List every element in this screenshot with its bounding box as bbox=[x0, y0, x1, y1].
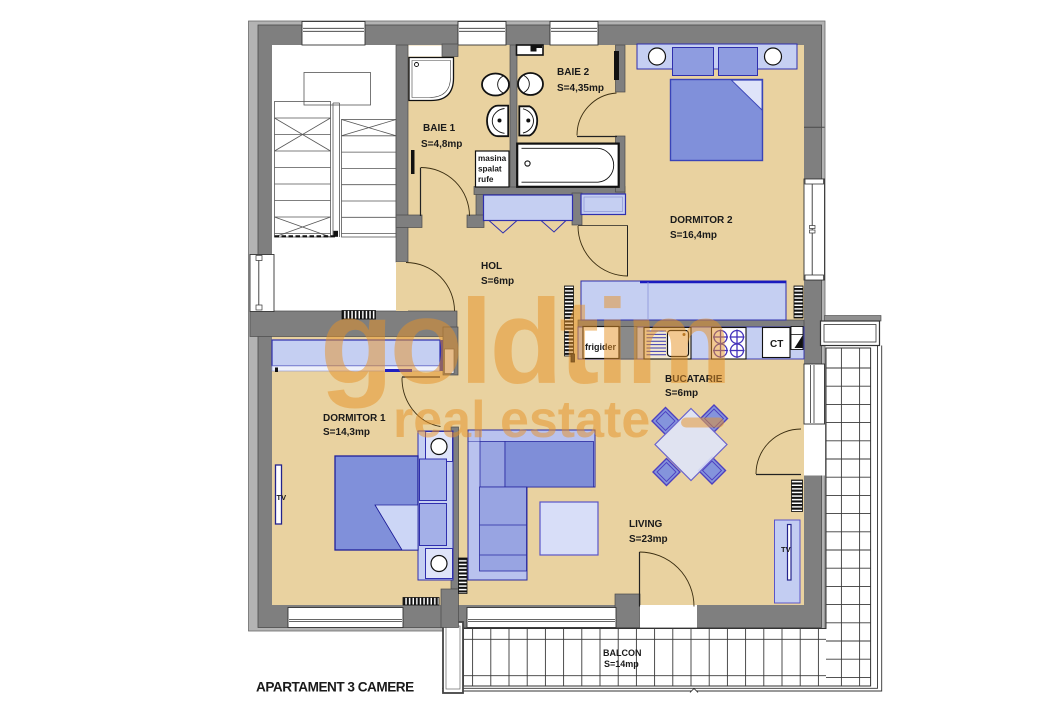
svg-text:S=14,3mp: S=14,3mp bbox=[323, 427, 370, 438]
svg-text:TV: TV bbox=[277, 493, 287, 502]
svg-text:BAIE 1: BAIE 1 bbox=[423, 123, 456, 134]
svg-text:APARTAMENT 3 CAMERE: APARTAMENT 3 CAMERE bbox=[256, 680, 414, 695]
svg-text:spalat: spalat bbox=[478, 165, 502, 174]
svg-text:real estate: real estate bbox=[393, 391, 650, 449]
svg-text:rufe: rufe bbox=[478, 175, 494, 184]
svg-text:BAIE 2: BAIE 2 bbox=[557, 67, 590, 78]
svg-text:LIVING: LIVING bbox=[629, 519, 663, 530]
svg-text:goldtim: goldtim bbox=[320, 275, 729, 409]
svg-text:S=23mp: S=23mp bbox=[629, 534, 668, 545]
svg-text:masina: masina bbox=[478, 154, 507, 163]
svg-text:BALCON: BALCON bbox=[603, 648, 642, 658]
svg-text:HOL: HOL bbox=[481, 261, 502, 272]
svg-text:CT: CT bbox=[770, 339, 783, 350]
svg-text:S=16,4mp: S=16,4mp bbox=[670, 230, 717, 241]
svg-text:S=14mp: S=14mp bbox=[604, 659, 639, 669]
svg-text:TV: TV bbox=[781, 545, 791, 554]
svg-text:DORMITOR 2: DORMITOR 2 bbox=[670, 215, 733, 226]
svg-text:S=4,35mp: S=4,35mp bbox=[557, 83, 604, 94]
svg-text:DORMITOR 1: DORMITOR 1 bbox=[323, 413, 386, 424]
svg-text:S=4,8mp: S=4,8mp bbox=[421, 139, 462, 150]
